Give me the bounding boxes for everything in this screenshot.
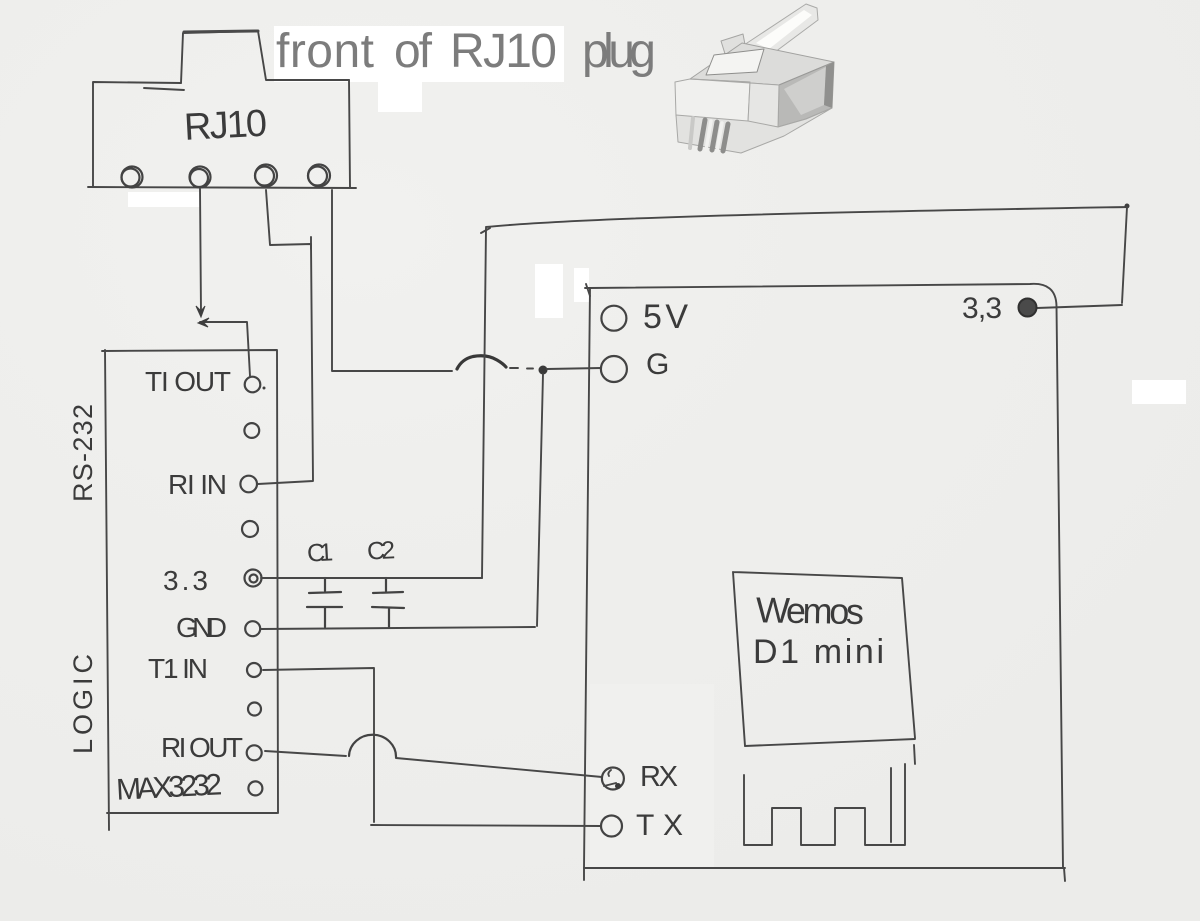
svg-text:C2: C2 <box>366 536 395 565</box>
svg-text:G: G <box>646 348 669 381</box>
svg-text:3.3: 3.3 <box>163 565 208 596</box>
svg-text:RJ10: RJ10 <box>183 103 269 149</box>
svg-text:5V: 5V <box>643 298 688 336</box>
svg-text:Wemos: Wemos <box>756 589 865 632</box>
svg-text:MAX3232: MAX3232 <box>115 768 223 807</box>
svg-text:3,3: 3,3 <box>962 292 1002 325</box>
svg-text:GND: GND <box>176 612 227 643</box>
svg-text:RS-232: RS-232 <box>68 404 98 502</box>
svg-text:T1 IN: T1 IN <box>148 653 208 684</box>
svg-text:LOGIC: LOGIC <box>68 654 98 754</box>
svg-text:RI OUT: RI OUT <box>161 732 243 763</box>
svg-text:RI IN: RI IN <box>168 469 227 500</box>
svg-text:D1 mini: D1 mini <box>753 633 884 671</box>
svg-text:C1: C1 <box>306 538 333 567</box>
svg-text:TI OUT: TI OUT <box>145 366 231 397</box>
svg-text:frontofRJ10plug: frontofRJ10plug <box>276 25 656 78</box>
svg-text:RX: RX <box>640 761 678 793</box>
